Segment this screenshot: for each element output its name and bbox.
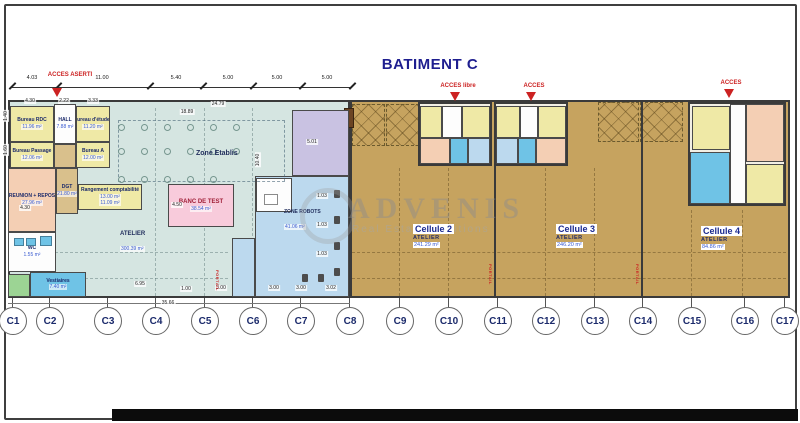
access-arrow-icon-0: [52, 88, 62, 97]
cell-divider-wall-1: [641, 100, 643, 298]
cell-type: ATELIER: [701, 237, 728, 243]
etabli-icon-0-5: [233, 124, 240, 131]
small-dimension-6: 5.01: [306, 139, 318, 145]
top-dimension-label-4: 5.00: [271, 75, 284, 81]
room-c4-corridor: [730, 104, 746, 204]
hatched-zone-3: [640, 102, 683, 142]
room-bureau-rdc: Bureau RDC11.96 m²: [10, 106, 54, 142]
top-dimension-label-0: 4.03: [26, 75, 39, 81]
portail-label-2: PORTAIL: [635, 264, 640, 285]
room-area: 12.00 m²: [82, 155, 104, 161]
room-c3-room-4: [496, 138, 518, 164]
room-hall: HALL7.88 m²: [54, 104, 76, 144]
room-c2-room-1: [420, 106, 442, 138]
cell-label-cellule-2: Cellule 2ATELIER241.29 m²: [413, 224, 454, 248]
wc-fixture-icon-2: [40, 236, 52, 246]
room-corridor: [54, 144, 76, 168]
grid-column-C11: C11: [484, 307, 512, 335]
robot-icon-0: [334, 190, 340, 198]
column-tick-3: [155, 297, 156, 307]
etabli-icon-2-4: [210, 176, 217, 183]
etabli-icon-1-1: [141, 148, 148, 155]
room-c4-room-2: [746, 104, 784, 162]
grid-column-C16: C16: [731, 307, 759, 335]
grid-dash-vertical-7: [691, 210, 692, 296]
room-bureau-passage: Bureau Passage12.06 m²: [10, 142, 54, 168]
grid-column-C7: C7: [287, 307, 315, 335]
column-tick-10: [497, 297, 498, 307]
room-c4-room-3: [690, 152, 730, 204]
hatched-zone-1: [386, 104, 419, 146]
room-zone-purple: [292, 110, 349, 176]
grid-column-C1: C1: [0, 307, 27, 335]
etabli-icon-1-2: [164, 148, 171, 155]
plan-title: BATIMENT C: [360, 56, 500, 73]
small-dimension-19: 1.03: [316, 251, 328, 257]
room-local-vert: [8, 274, 30, 297]
etabli-icon-1-0: [118, 148, 125, 155]
top-dimension-label-5: 5.00: [321, 75, 334, 81]
top-dimension-label-3: 5.00: [222, 75, 235, 81]
access-arrow-icon-1: [450, 92, 460, 101]
column-tick-5: [252, 297, 253, 307]
column-tick-9: [448, 297, 449, 307]
top-dimension-label-1: 11.00: [94, 75, 109, 81]
bottom-black-bar: [112, 409, 798, 421]
floorplan-canvas: BATIMENT C ADVENIS Real Estate Solutions…: [0, 0, 800, 423]
grid-column-C8: C8: [336, 307, 364, 335]
robot-icon-2: [334, 242, 340, 250]
room-rangement-compta: Rangement comptabilité13.00 m²11.09 m²: [78, 184, 142, 210]
robot-icon-1: [334, 216, 340, 224]
access-label-2: ACCES: [523, 83, 544, 89]
cell-type: ATELIER: [556, 235, 583, 241]
access-arrow-icon-3: [724, 89, 734, 98]
column-tick-6: [300, 297, 301, 307]
small-dimension-18: 1.03: [316, 222, 328, 228]
grid-column-C6: C6: [239, 307, 267, 335]
etabli-icon-0-0: [118, 124, 125, 131]
small-dimension-4: 18.89: [180, 109, 195, 115]
room-area: 7.88 m²: [56, 124, 75, 130]
small-dimension-9: 4.30: [19, 205, 31, 211]
small-dimension-5: 10.40: [255, 153, 261, 168]
robot-icon-5: [318, 274, 324, 282]
grid-dash-vertical-3: [399, 168, 400, 296]
etabli-icon-2-1: [141, 176, 148, 183]
access-arrow-icon-2: [526, 92, 536, 101]
column-tick-13: [642, 297, 643, 307]
small-dimension-17: 1.03: [316, 193, 328, 199]
zone-area: 300.39 m²: [120, 246, 145, 252]
room-area: 7.40 m²: [49, 284, 68, 290]
small-dimension-15: 3.00: [295, 285, 307, 291]
zone-title: ATELIER: [120, 231, 145, 237]
grid-dash-vertical-5: [545, 168, 546, 296]
column-tick-16: [784, 297, 785, 307]
room-c2-room-2: [442, 106, 462, 138]
room-area: 21.80 m²: [56, 191, 78, 197]
small-dimension-2: 3.33: [87, 98, 99, 104]
small-dimension-12: 1.00: [180, 286, 192, 292]
room-label: BANC DE TEST: [179, 199, 223, 206]
room-area-2: 11.09 m²: [99, 200, 120, 206]
column-tick-4: [204, 297, 205, 307]
column-tick-2: [107, 297, 108, 307]
small-dimension-11: 6.95: [134, 281, 146, 287]
grid-dash-horizontal-2: [352, 252, 786, 253]
room-bureau-a: Bureau A12.00 m²: [76, 142, 110, 168]
column-tick-15: [744, 297, 745, 307]
room-area: 1.55 m²: [23, 252, 42, 258]
room-c2-room-5: [450, 138, 468, 164]
cell-name: Cellule 4: [701, 226, 742, 236]
room-c4-room-4: [746, 164, 784, 204]
room-c2-room-4: [420, 138, 450, 164]
cell-area: 84.86 m²: [701, 244, 725, 250]
grid-column-C4: C4: [142, 307, 170, 335]
hatched-zone-0: [352, 104, 385, 146]
room-c2-room-3: [462, 106, 490, 138]
room-c3-room-2: [520, 106, 538, 138]
room-c3-room-3: [538, 106, 566, 138]
portail-label-1: PORTAIL: [488, 264, 493, 285]
robot-icon-3: [334, 268, 340, 276]
robot-icon-4: [302, 274, 308, 282]
top-dimension-label-2: 5.40: [170, 75, 183, 81]
small-dimension-20: 35.66: [161, 300, 176, 306]
cell-type: ATELIER: [413, 235, 440, 241]
room-c2-room-6: [468, 138, 490, 164]
etabli-icon-1-3: [187, 148, 194, 155]
cell-label-cellule-3: Cellule 3ATELIER246.20 m²: [556, 224, 597, 248]
column-tick-14: [691, 297, 692, 307]
grid-dash-horizontal-3: [352, 278, 786, 279]
grid-column-C14: C14: [629, 307, 657, 335]
grid-column-C12: C12: [532, 307, 560, 335]
small-dimension-3: 24.79: [211, 101, 226, 107]
portail-label-0: PORTAIL: [215, 270, 220, 291]
wc-fixture-icon-1: [26, 238, 36, 246]
access-label-0: ACCES ASERTI: [48, 72, 92, 78]
etabli-icon-2-3: [187, 176, 194, 183]
cell-name: Cellule 2: [413, 224, 454, 234]
small-dimension-7: 1.40: [3, 110, 9, 122]
room-c3-room-5: [518, 138, 536, 164]
zone-area: 41.06 m²: [284, 224, 306, 230]
grid-column-C3: C3: [94, 307, 122, 335]
room-area: 11.20 m²: [82, 124, 103, 130]
grid-dash-vertical-8: [742, 210, 743, 296]
etabli-icon-0-2: [164, 124, 171, 131]
zone-label-zone-etablis: Zone Etablis: [196, 150, 238, 157]
cell-label-cellule-4: Cellule 4ATELIER84.86 m²: [701, 226, 742, 250]
small-dimension-1: 2.22: [58, 98, 70, 104]
etabli-icon-0-3: [187, 124, 194, 131]
room-c4-room-1: [692, 106, 730, 150]
room-area: 38.54 m²: [190, 206, 212, 212]
bottom-dimension-line: [8, 303, 350, 304]
room-dgt: DGT21.80 m²: [56, 168, 78, 214]
room-c3-room-1: [496, 106, 520, 138]
grid-column-C15: C15: [678, 307, 706, 335]
etabli-icon-0-1: [141, 124, 148, 131]
grid-column-C10: C10: [435, 307, 463, 335]
column-tick-1: [49, 297, 50, 307]
grid-column-C17: C17: [771, 307, 799, 335]
cell-area: 241.29 m²: [413, 242, 440, 248]
zone-title: ZONE ROBOTS: [284, 209, 321, 215]
access-label-3: ACCES: [720, 80, 741, 86]
etabli-icon-0-4: [210, 124, 217, 131]
desk-icon: [264, 194, 278, 205]
room-bureau-etudes: Bureau d'études11.20 m²: [76, 106, 110, 142]
room-area: 12.06 m²: [21, 155, 43, 161]
grid-column-C5: C5: [191, 307, 219, 335]
small-dimension-14: 3.00: [268, 285, 280, 291]
column-tick-7: [349, 297, 350, 307]
room-vestiaires: Vestiaires7.40 m²: [30, 272, 86, 297]
zone-title: Zone Etablis: [196, 150, 238, 157]
room-zone-robots-b: [232, 238, 255, 297]
small-dimension-0: 4.30: [24, 98, 36, 104]
column-tick-0: [12, 297, 13, 307]
room-reunion-repos: REUNION + REPOS27.96 m²: [8, 168, 56, 232]
etabli-icon-2-0: [118, 176, 125, 183]
etabli-icon-2-2: [164, 176, 171, 183]
small-dimension-8: 1.60: [3, 144, 9, 156]
grid-column-C13: C13: [581, 307, 609, 335]
cell-name: Cellule 3: [556, 224, 597, 234]
column-tick-12: [594, 297, 595, 307]
column-tick-11: [545, 297, 546, 307]
grid-column-C9: C9: [386, 307, 414, 335]
hatched-zone-2: [598, 102, 639, 142]
grid-column-C2: C2: [36, 307, 64, 335]
room-c3-room-6: [536, 138, 566, 164]
small-dimension-10: 4.50: [171, 202, 183, 208]
small-dimension-16: 3.02: [325, 285, 337, 291]
column-tick-8: [399, 297, 400, 307]
zone-label-zone-robots: ZONE ROBOTS41.06 m²: [284, 209, 321, 233]
access-label-1: ACCES libre: [440, 83, 475, 89]
room-area: 11.96 m²: [21, 124, 42, 130]
cell-area: 246.20 m²: [556, 242, 583, 248]
wc-fixture-icon-0: [14, 238, 24, 246]
zone-label-atelier-main: ATELIER300.39 m²: [120, 231, 145, 255]
